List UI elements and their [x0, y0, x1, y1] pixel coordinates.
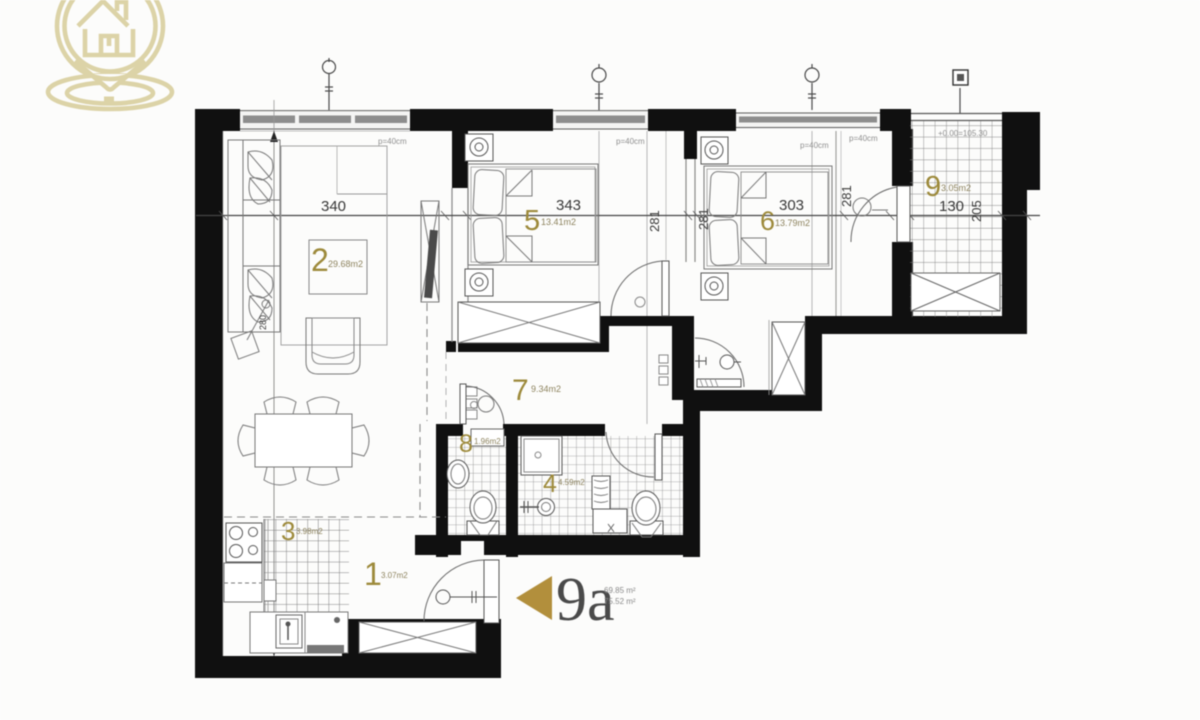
svg-text:+0.00=105.30: +0.00=105.30 — [938, 129, 988, 138]
svg-text:4.59m2: 4.59m2 — [558, 478, 585, 487]
svg-text:1.96m2: 1.96m2 — [474, 437, 501, 446]
svg-text:p=40cm: p=40cm — [378, 137, 407, 146]
svg-text:75.52 m²: 75.52 m² — [604, 597, 636, 606]
svg-text:1: 1 — [364, 556, 382, 592]
svg-text:13.41m2: 13.41m2 — [541, 217, 576, 227]
svg-text:5: 5 — [524, 205, 540, 237]
svg-text:p=40cm: p=40cm — [800, 141, 829, 150]
svg-text:p=40cm: p=40cm — [849, 134, 878, 143]
svg-text:4: 4 — [543, 470, 557, 498]
svg-text:9.34m2: 9.34m2 — [531, 384, 561, 394]
svg-text:303: 303 — [779, 197, 804, 214]
svg-text:69.85 m²: 69.85 m² — [604, 586, 636, 595]
svg-text:3.05m2: 3.05m2 — [941, 183, 971, 193]
svg-text:281: 281 — [839, 185, 854, 207]
svg-text:29.68m2: 29.68m2 — [328, 259, 363, 269]
svg-text:3: 3 — [281, 516, 295, 546]
svg-text:340: 340 — [321, 198, 346, 215]
svg-text:130: 130 — [939, 198, 964, 215]
svg-text:7: 7 — [512, 374, 529, 407]
svg-text:3.07m2: 3.07m2 — [381, 571, 408, 580]
svg-text:2: 2 — [311, 242, 329, 278]
svg-text:281: 281 — [696, 208, 711, 230]
svg-text:13.79m2: 13.79m2 — [775, 218, 810, 228]
svg-text:280: 280 — [258, 315, 268, 330]
svg-text:9: 9 — [925, 171, 941, 203]
svg-text:6: 6 — [760, 206, 775, 236]
svg-text:205: 205 — [969, 200, 984, 222]
svg-text:8: 8 — [459, 430, 473, 458]
svg-text:281: 281 — [647, 210, 662, 232]
svg-text:p=40cm: p=40cm — [616, 137, 645, 146]
svg-text:343: 343 — [556, 197, 581, 214]
svg-text:3.98m2: 3.98m2 — [296, 527, 323, 536]
